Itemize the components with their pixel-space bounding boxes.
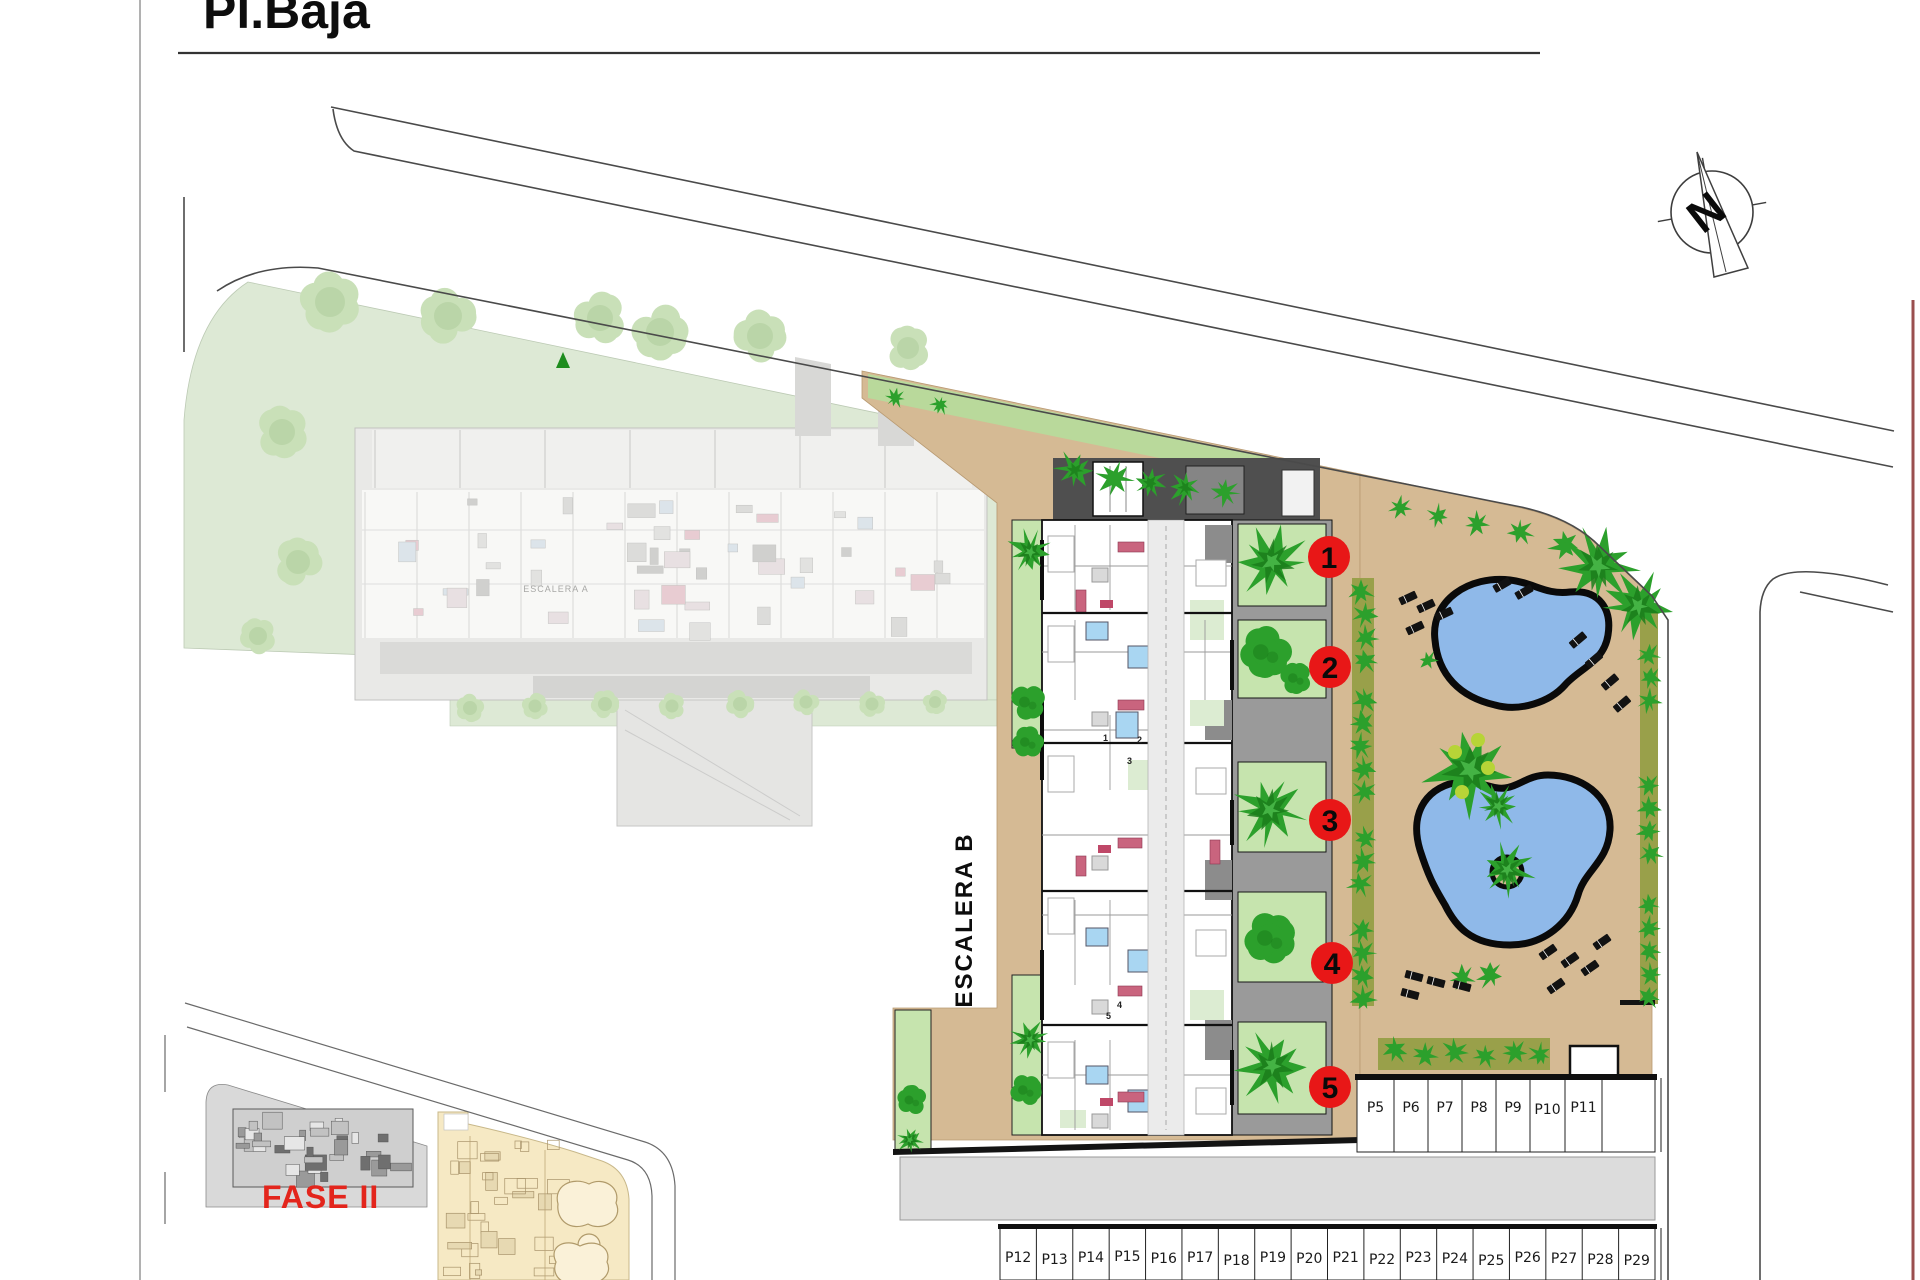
yellow-mini-room — [481, 1231, 497, 1247]
plan-digit-4: 4 — [1117, 1000, 1122, 1010]
bed — [1048, 1042, 1074, 1078]
wall-chunk — [1230, 640, 1234, 690]
bed — [1196, 560, 1226, 586]
bathroom — [1086, 928, 1108, 946]
compass-north-icon: N — [1648, 148, 1775, 277]
faded-furniture — [855, 591, 874, 604]
faded-furniture — [842, 548, 852, 557]
indoor-green — [1190, 700, 1224, 726]
faded-furniture — [685, 530, 700, 539]
faded-furniture — [753, 545, 776, 562]
site-plan-page: ESCALERA A FASE II — [0, 0, 1920, 1280]
patio — [1205, 525, 1232, 563]
parking-stall-label: P7 — [1436, 1100, 1453, 1116]
faded-tree-icon — [747, 323, 773, 349]
wall-chunk — [1230, 800, 1234, 845]
faded-furniture — [664, 552, 690, 568]
faded-furniture — [834, 512, 845, 518]
faded-furniture — [531, 540, 545, 548]
parking-upper-wall — [1355, 1074, 1657, 1080]
west-garden-strip-3 — [895, 1010, 931, 1152]
marker-number: 1 — [1321, 542, 1338, 575]
pool-house — [1570, 1046, 1618, 1078]
parking-lower-wall — [998, 1224, 1657, 1229]
faded-furniture — [477, 579, 490, 595]
parking-stall-label: P5 — [1367, 1100, 1384, 1116]
yellow-mini-room — [448, 1242, 472, 1249]
faded-walkway — [380, 642, 972, 674]
fase2-mini-room — [263, 1112, 282, 1129]
armchair — [1098, 845, 1111, 853]
parking-stall-label: P12 — [1005, 1250, 1031, 1266]
round-tree-icon — [905, 1096, 914, 1105]
marker-number: 2 — [1322, 652, 1339, 685]
faded-furniture — [935, 573, 950, 584]
escalera-b-label: ESCALERA B — [951, 832, 978, 1007]
faded-furniture — [891, 617, 907, 636]
armchair — [1100, 600, 1113, 608]
road-band — [900, 1157, 1655, 1220]
yellow-mini-room — [475, 1270, 481, 1275]
parking-stall-label: P13 — [1041, 1252, 1067, 1268]
marker-number: 3 — [1322, 805, 1339, 838]
round-tree-icon — [1028, 742, 1035, 749]
faded-furniture — [911, 575, 935, 591]
tree-highlight — [1481, 761, 1495, 775]
yellow-parcel — [438, 1112, 629, 1280]
bed — [1048, 626, 1074, 662]
faded-tree-icon — [800, 696, 813, 709]
faded-furniture — [690, 623, 711, 641]
wall-chunk — [1040, 540, 1044, 600]
faded-tree-icon — [646, 318, 674, 346]
fase2-mini-room — [236, 1143, 249, 1148]
indoor-green — [1190, 600, 1224, 640]
faded-furniture — [638, 620, 664, 632]
faded-furniture — [662, 585, 686, 604]
wall-chunk — [1230, 1050, 1234, 1105]
round-tree-icon — [1019, 697, 1030, 708]
fase2-mini-room — [378, 1134, 388, 1142]
wall-chunk — [1040, 950, 1044, 1020]
faded-parcel-escalera-a: ESCALERA A — [184, 271, 1011, 826]
site-plan-canvas: ESCALERA A FASE II — [0, 0, 1920, 1280]
bed — [1048, 898, 1074, 934]
fase2-mini-room — [331, 1121, 348, 1134]
sofa — [1210, 840, 1220, 864]
unit-marker-1: 1 — [1308, 536, 1350, 578]
parking-stall-label: P9 — [1504, 1100, 1521, 1116]
fase2-parcel: FASE II — [206, 1084, 427, 1215]
parking-stall-label: P28 — [1587, 1252, 1613, 1268]
round-tree-icon — [1257, 930, 1273, 946]
faded-furniture — [627, 543, 646, 562]
parking-stall-label: P21 — [1333, 1250, 1359, 1266]
yellow-mini-room — [446, 1213, 465, 1228]
faded-furniture — [414, 609, 424, 616]
unit-marker-4: 4 — [1311, 942, 1353, 984]
faded-tree-icon — [315, 287, 345, 317]
parking-stall-label: P16 — [1151, 1251, 1177, 1267]
faded-furniture — [800, 558, 813, 573]
yellow-pool-outline-1 — [557, 1181, 618, 1226]
faded-furniture — [934, 561, 943, 572]
faded-tree-icon — [286, 550, 310, 574]
faded-furniture — [659, 501, 673, 514]
sofa — [1118, 1092, 1144, 1102]
faded-tree-icon — [598, 697, 612, 711]
fase2-mini-room — [253, 1141, 271, 1147]
yellow-pool-outline-2 — [554, 1243, 609, 1280]
marker-number: 5 — [1322, 1072, 1339, 1105]
bed — [1196, 1088, 1226, 1114]
fase2-mini-room — [391, 1163, 412, 1171]
round-tree-icon — [1018, 1085, 1028, 1095]
faded-tree-icon — [866, 698, 879, 711]
faded-furniture — [607, 523, 623, 529]
faded-furniture — [634, 590, 649, 609]
parking-stall-label: P23 — [1405, 1250, 1431, 1266]
parking-stall-label: P15 — [1114, 1249, 1140, 1265]
round-tree-icon — [1267, 651, 1278, 662]
faded-furniture — [399, 542, 416, 562]
round-tree-icon — [912, 1100, 919, 1107]
faded-furniture — [548, 612, 568, 624]
faded-furniture — [896, 568, 906, 576]
sofa — [1118, 838, 1142, 848]
bathroom — [1086, 622, 1108, 640]
faded-tree-icon — [929, 696, 941, 708]
parking-stall-label: P14 — [1078, 1250, 1104, 1266]
faded-tree-icon — [733, 697, 747, 711]
faded-furniture — [696, 568, 706, 579]
faded-ramp-area — [617, 700, 812, 826]
sofa — [1076, 856, 1086, 876]
unit-marker-2: 2 — [1309, 646, 1351, 688]
yellow-mini-room — [486, 1172, 498, 1190]
parking-stall-label: P26 — [1515, 1250, 1541, 1266]
parking-stall-label: P24 — [1442, 1251, 1468, 1267]
faded-furniture — [486, 563, 500, 569]
bathroom — [1116, 712, 1138, 738]
sofa — [1118, 986, 1142, 996]
round-tree-icon — [1253, 644, 1269, 660]
fase2-mini-room — [352, 1132, 358, 1143]
fase2-mini-room — [286, 1164, 299, 1175]
faded-tree-icon — [529, 700, 542, 713]
parking-stall-label: P29 — [1624, 1253, 1650, 1269]
round-tree-icon — [1296, 678, 1303, 685]
round-tree-icon — [1288, 673, 1298, 683]
faded-furniture — [858, 517, 873, 529]
faded-furniture — [628, 504, 655, 518]
yellow-mini-room — [513, 1192, 534, 1198]
bed — [1196, 768, 1226, 794]
parking-stall-label: P25 — [1478, 1253, 1504, 1269]
unit-marker-3: 3 — [1309, 799, 1351, 841]
fase2-mini-room — [310, 1128, 329, 1136]
parking-stall-label: P18 — [1223, 1253, 1249, 1269]
indoor-green — [1060, 1110, 1086, 1128]
tree-highlight — [1448, 745, 1462, 759]
yellow-mini-room — [459, 1162, 470, 1174]
faded-furniture — [654, 527, 670, 540]
fase2-mini-room — [284, 1137, 304, 1150]
fase2-mini-room — [379, 1155, 391, 1169]
parking-stall-label: P6 — [1402, 1100, 1419, 1116]
table — [1092, 568, 1108, 582]
page-title: Pl.Baja — [203, 0, 371, 39]
parking-stall-label: P10 — [1534, 1102, 1560, 1118]
faded-tree-icon — [666, 700, 679, 713]
parking-stall-label: P27 — [1551, 1251, 1577, 1267]
faded-tree-icon — [587, 305, 613, 331]
round-tree-icon — [1029, 702, 1037, 710]
bed — [1048, 756, 1074, 792]
yellow-mini-room — [485, 1152, 500, 1160]
faded-furniture — [758, 607, 771, 625]
indoor-green — [1190, 990, 1224, 1020]
faded-walkway-lower — [533, 676, 870, 698]
parking-stall-label: P22 — [1369, 1252, 1395, 1268]
plan-digit-1: 1 — [1103, 733, 1108, 743]
fase2-mini-room — [334, 1140, 347, 1155]
fase2-label: FASE II — [262, 1179, 379, 1215]
yellow-notch — [444, 1114, 468, 1130]
faded-tree-icon — [897, 337, 919, 359]
east-street-edge — [1760, 572, 1888, 1280]
round-tree-icon — [1026, 1090, 1033, 1097]
round-tree-icon — [1020, 737, 1030, 747]
patio — [1205, 860, 1232, 900]
fase2-mini-room — [305, 1157, 323, 1163]
sofa — [1118, 700, 1144, 710]
faded-tree-icon — [269, 419, 295, 445]
faded-furniture — [447, 588, 467, 608]
table — [1092, 1114, 1108, 1128]
roof-block-3 — [1282, 470, 1314, 516]
faded-furniture — [478, 534, 487, 548]
marker-number: 4 — [1324, 948, 1341, 981]
tree-highlight — [1455, 785, 1469, 799]
table — [1092, 712, 1108, 726]
unit-marker-5: 5 — [1309, 1066, 1351, 1108]
tree-highlight — [1471, 733, 1485, 747]
armchair — [1100, 1098, 1113, 1106]
plan-digit-3: 3 — [1127, 756, 1132, 766]
faded-furniture — [791, 577, 804, 588]
parking-stall-label: P19 — [1260, 1250, 1286, 1266]
bed — [1048, 536, 1074, 572]
fase2-mini-room — [249, 1121, 257, 1130]
faded-furniture — [736, 505, 752, 513]
yellow-mini-room — [499, 1239, 515, 1255]
faded-furniture — [637, 566, 663, 573]
sofa — [1076, 590, 1086, 612]
bathroom — [1086, 1066, 1108, 1084]
escalera-a-label: ESCALERA A — [523, 584, 589, 594]
parking-stall-label: P8 — [1470, 1100, 1487, 1116]
faded-furniture — [468, 499, 478, 505]
faded-furniture — [563, 498, 572, 514]
faded-furniture — [757, 514, 779, 522]
faded-tree-icon — [434, 302, 462, 330]
parking-stall-label: P11 — [1570, 1100, 1596, 1116]
faded-tree-icon — [463, 701, 477, 715]
parking-stall-label: P20 — [1296, 1251, 1322, 1267]
parking-stall-label: P17 — [1187, 1250, 1213, 1266]
fase2-mini-room — [361, 1156, 370, 1170]
faded-furniture — [685, 602, 710, 610]
bed — [1196, 930, 1226, 956]
round-tree-icon — [1271, 937, 1282, 948]
faded-tree-icon — [249, 627, 267, 645]
sofa — [1118, 542, 1144, 552]
faded-furniture — [650, 548, 658, 565]
plan-digit-2: 2 — [1137, 735, 1142, 745]
plan-digit-5: 5 — [1106, 1011, 1111, 1021]
east-street-stub — [1800, 592, 1893, 612]
faded-furniture — [728, 544, 738, 552]
table — [1092, 856, 1108, 870]
